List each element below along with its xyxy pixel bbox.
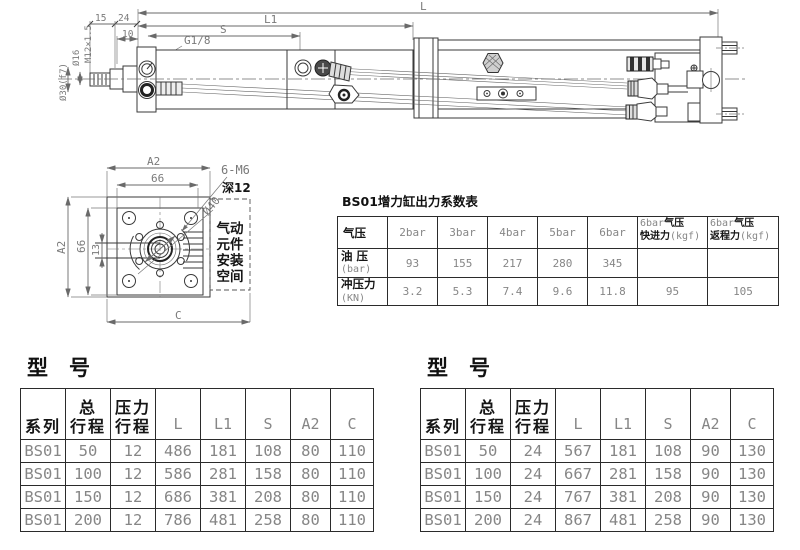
table-cell: 181	[601, 440, 646, 463]
dim-label-rod-dia: Ø16	[71, 50, 82, 66]
table-cell: 12	[111, 509, 156, 532]
table-cell: 686	[156, 486, 201, 509]
table-cell: 208	[246, 486, 291, 509]
install-note-line3: 安装	[217, 252, 244, 269]
table-cell: 105	[708, 278, 779, 306]
model-table-stroke12: 系列 总 行程 压力 行程 L L1 S A2 C BS015012486181…	[20, 388, 374, 532]
table-cell: 200	[466, 509, 511, 532]
datasheet-page: L L1 S 10 15 24 M12×1.5 Ø16 Ø30(f7) G1/8	[0, 0, 800, 550]
table-cell: 110	[331, 486, 374, 509]
table-row: BS01502456718110890130	[421, 440, 774, 463]
table-cell: 586	[156, 463, 201, 486]
table-cell: 567	[556, 440, 601, 463]
dim-label-L1: L1	[264, 13, 277, 26]
table-cell: 24	[511, 440, 556, 463]
table-cell: 80	[291, 463, 331, 486]
table-cell: 200	[66, 509, 111, 532]
dim-label-a2-top: A2	[147, 155, 160, 168]
table-cell: 486	[156, 440, 201, 463]
column-header: 总 行程	[66, 389, 111, 440]
table-cell: 12	[111, 463, 156, 486]
table-cell: 11.8	[588, 278, 638, 306]
column-header: 6bar气压快进力(kgf)	[638, 217, 708, 249]
column-header: 5bar	[538, 217, 588, 249]
column-header: 2bar	[388, 217, 438, 249]
column-header: 系列	[21, 389, 66, 440]
table-cell: 24	[511, 486, 556, 509]
table-cell: 158	[246, 463, 291, 486]
table-cell: BS01	[421, 440, 466, 463]
table-cell: 281	[201, 463, 246, 486]
column-header: L1	[201, 389, 246, 440]
table-cell: 110	[331, 463, 374, 486]
table-cell: 667	[556, 463, 601, 486]
table-cell: 786	[156, 509, 201, 532]
table-cell: 381	[601, 486, 646, 509]
table-cell: 24	[511, 509, 556, 532]
table-cell: BS01	[21, 486, 66, 509]
model-table-2-title: 型 号	[427, 352, 490, 382]
dim-label-rod-thread: M12×1.5	[84, 25, 94, 63]
table-cell: 90	[691, 486, 731, 509]
table-cell: 110	[331, 509, 374, 532]
table-row: BS011002466728115890130	[421, 463, 774, 486]
column-header: S	[246, 389, 291, 440]
model-table-1-title: 型 号	[27, 352, 90, 382]
hex-vent-plug	[483, 54, 503, 73]
table-cell: 100	[66, 463, 111, 486]
front-head	[137, 47, 156, 112]
table-cell: 150	[66, 486, 111, 509]
table-cell: 381	[201, 486, 246, 509]
table-cell: 24	[511, 463, 556, 486]
name-plate	[477, 87, 536, 100]
model-table-stroke24: 系列 总 行程 压力 行程 L L1 S A2 C BS015024567181…	[420, 388, 774, 532]
table-cell: 50	[66, 440, 111, 463]
dim-label-10: 10	[122, 29, 134, 40]
column-header: 4bar	[488, 217, 538, 249]
table-cell: 3.2	[388, 278, 438, 306]
cylinder-end-view-drawing: A2 66 A2 66 13 C 6-M6 深12 Ø40	[35, 148, 275, 344]
table-cell: 90	[691, 509, 731, 532]
table-cell: 9.6	[538, 278, 588, 306]
install-note-line1: 气动	[216, 220, 244, 237]
column-header: 气压	[338, 217, 388, 249]
dim-label-shaft-dia: Ø30(f7)	[58, 63, 69, 101]
column-header: A2	[691, 389, 731, 440]
column-header: A2	[291, 389, 331, 440]
table-cell: 155	[438, 249, 488, 278]
hole-depth-label: 深12	[222, 180, 251, 195]
table-cell: 280	[538, 249, 588, 278]
table-row: 冲压力(KN) 3.2 5.3 7.4 9.6 11.8 95 105	[338, 278, 779, 306]
dim-label-24: 24	[118, 13, 130, 24]
table-row: BS012002486748125890130	[421, 509, 774, 532]
table-cell: 130	[731, 440, 774, 463]
column-header: 6bar	[588, 217, 638, 249]
table-cell: 181	[201, 440, 246, 463]
table-row: BS011001258628115880110	[21, 463, 374, 486]
hydraulic-body	[156, 50, 413, 109]
table-cell	[708, 249, 779, 278]
table-cell: 258	[246, 509, 291, 532]
table-row: 油 压(bar) 93 155 217 280 345	[338, 249, 779, 278]
table-row: BS01501248618110880110	[21, 440, 374, 463]
table-row: BS011501268638120880110	[21, 486, 374, 509]
table-cell: BS01	[421, 509, 466, 532]
table-cell: 130	[731, 486, 774, 509]
table-cell: 5.3	[438, 278, 488, 306]
table-cell: BS01	[21, 463, 66, 486]
table-cell: BS01	[421, 463, 466, 486]
mid-port-circle	[295, 60, 311, 76]
table-cell: 217	[488, 249, 538, 278]
table-cell: 12	[111, 440, 156, 463]
table-cell: BS01	[21, 440, 66, 463]
table-cell: 258	[646, 509, 691, 532]
table-cell: 80	[291, 486, 331, 509]
column-header: L	[156, 389, 201, 440]
table-row: BS011502476738120890130	[421, 486, 774, 509]
table-cell: 150	[466, 486, 511, 509]
row-header: 冲压力(KN)	[338, 278, 388, 306]
table-cell: 208	[646, 486, 691, 509]
column-header: C	[331, 389, 374, 440]
column-header: C	[731, 389, 774, 440]
table-cell: 90	[691, 463, 731, 486]
table-cell: 281	[601, 463, 646, 486]
column-header: 3bar	[438, 217, 488, 249]
dim-label-S: S	[220, 23, 227, 36]
table-cell: 80	[291, 440, 331, 463]
force-table-title: BS01增力缸出力系数表	[342, 191, 478, 210]
install-note-line4: 空间	[217, 268, 244, 285]
table-cell: 110	[331, 440, 374, 463]
table-cell: 80	[291, 509, 331, 532]
cylinder-side-view-drawing: L L1 S 10 15 24 M12×1.5 Ø16 Ø30(f7) G1/8	[0, 0, 800, 146]
column-header: L1	[601, 389, 646, 440]
dim-label-66-top: 66	[151, 172, 164, 185]
dim-label-15: 15	[95, 13, 106, 24]
table-cell: 767	[556, 486, 601, 509]
table-cell: 7.4	[488, 278, 538, 306]
table-row: BS012001278648125880110	[21, 509, 374, 532]
table-cell: 93	[388, 249, 438, 278]
install-note-line2: 元件	[217, 236, 244, 253]
table-cell: 108	[646, 440, 691, 463]
table-cell: 158	[646, 463, 691, 486]
column-header: 总 行程	[466, 389, 511, 440]
table-cell: 95	[638, 278, 708, 306]
dim-label-13: 13	[91, 244, 102, 256]
table-cell	[638, 249, 708, 278]
table-cell: 130	[731, 509, 774, 532]
table-cell: 130	[731, 463, 774, 486]
hose-fitting	[156, 82, 182, 95]
column-header: 系列	[421, 389, 466, 440]
dim-label-a2-left: A2	[55, 241, 68, 254]
column-header: L	[556, 389, 601, 440]
table-cell: 100	[466, 463, 511, 486]
port-label: G1/8	[184, 34, 211, 47]
force-table: 气压 2bar 3bar 4bar 5bar 6bar 6bar气压快进力(kg…	[337, 216, 779, 306]
column-header: 压力 行程	[511, 389, 556, 440]
table-cell: 867	[556, 509, 601, 532]
table-cell: 345	[588, 249, 638, 278]
column-header: 6bar气压返程力(kgf)	[708, 217, 779, 249]
table-cell: BS01	[421, 486, 466, 509]
dim-label-66-left: 66	[75, 240, 88, 253]
table-cell: 481	[601, 509, 646, 532]
holes-label: 6-M6	[221, 163, 250, 177]
row-header: 油 压(bar)	[338, 249, 388, 278]
dim-label-C: C	[175, 309, 182, 322]
column-header: 压力 行程	[111, 389, 156, 440]
table-cell: BS01	[21, 509, 66, 532]
column-header: S	[646, 389, 691, 440]
table-cell: 108	[246, 440, 291, 463]
table-cell: 481	[201, 509, 246, 532]
table-cell: 12	[111, 486, 156, 509]
table-cell: 90	[691, 440, 731, 463]
table-cell: 50	[466, 440, 511, 463]
dim-label-L: L	[420, 0, 427, 13]
